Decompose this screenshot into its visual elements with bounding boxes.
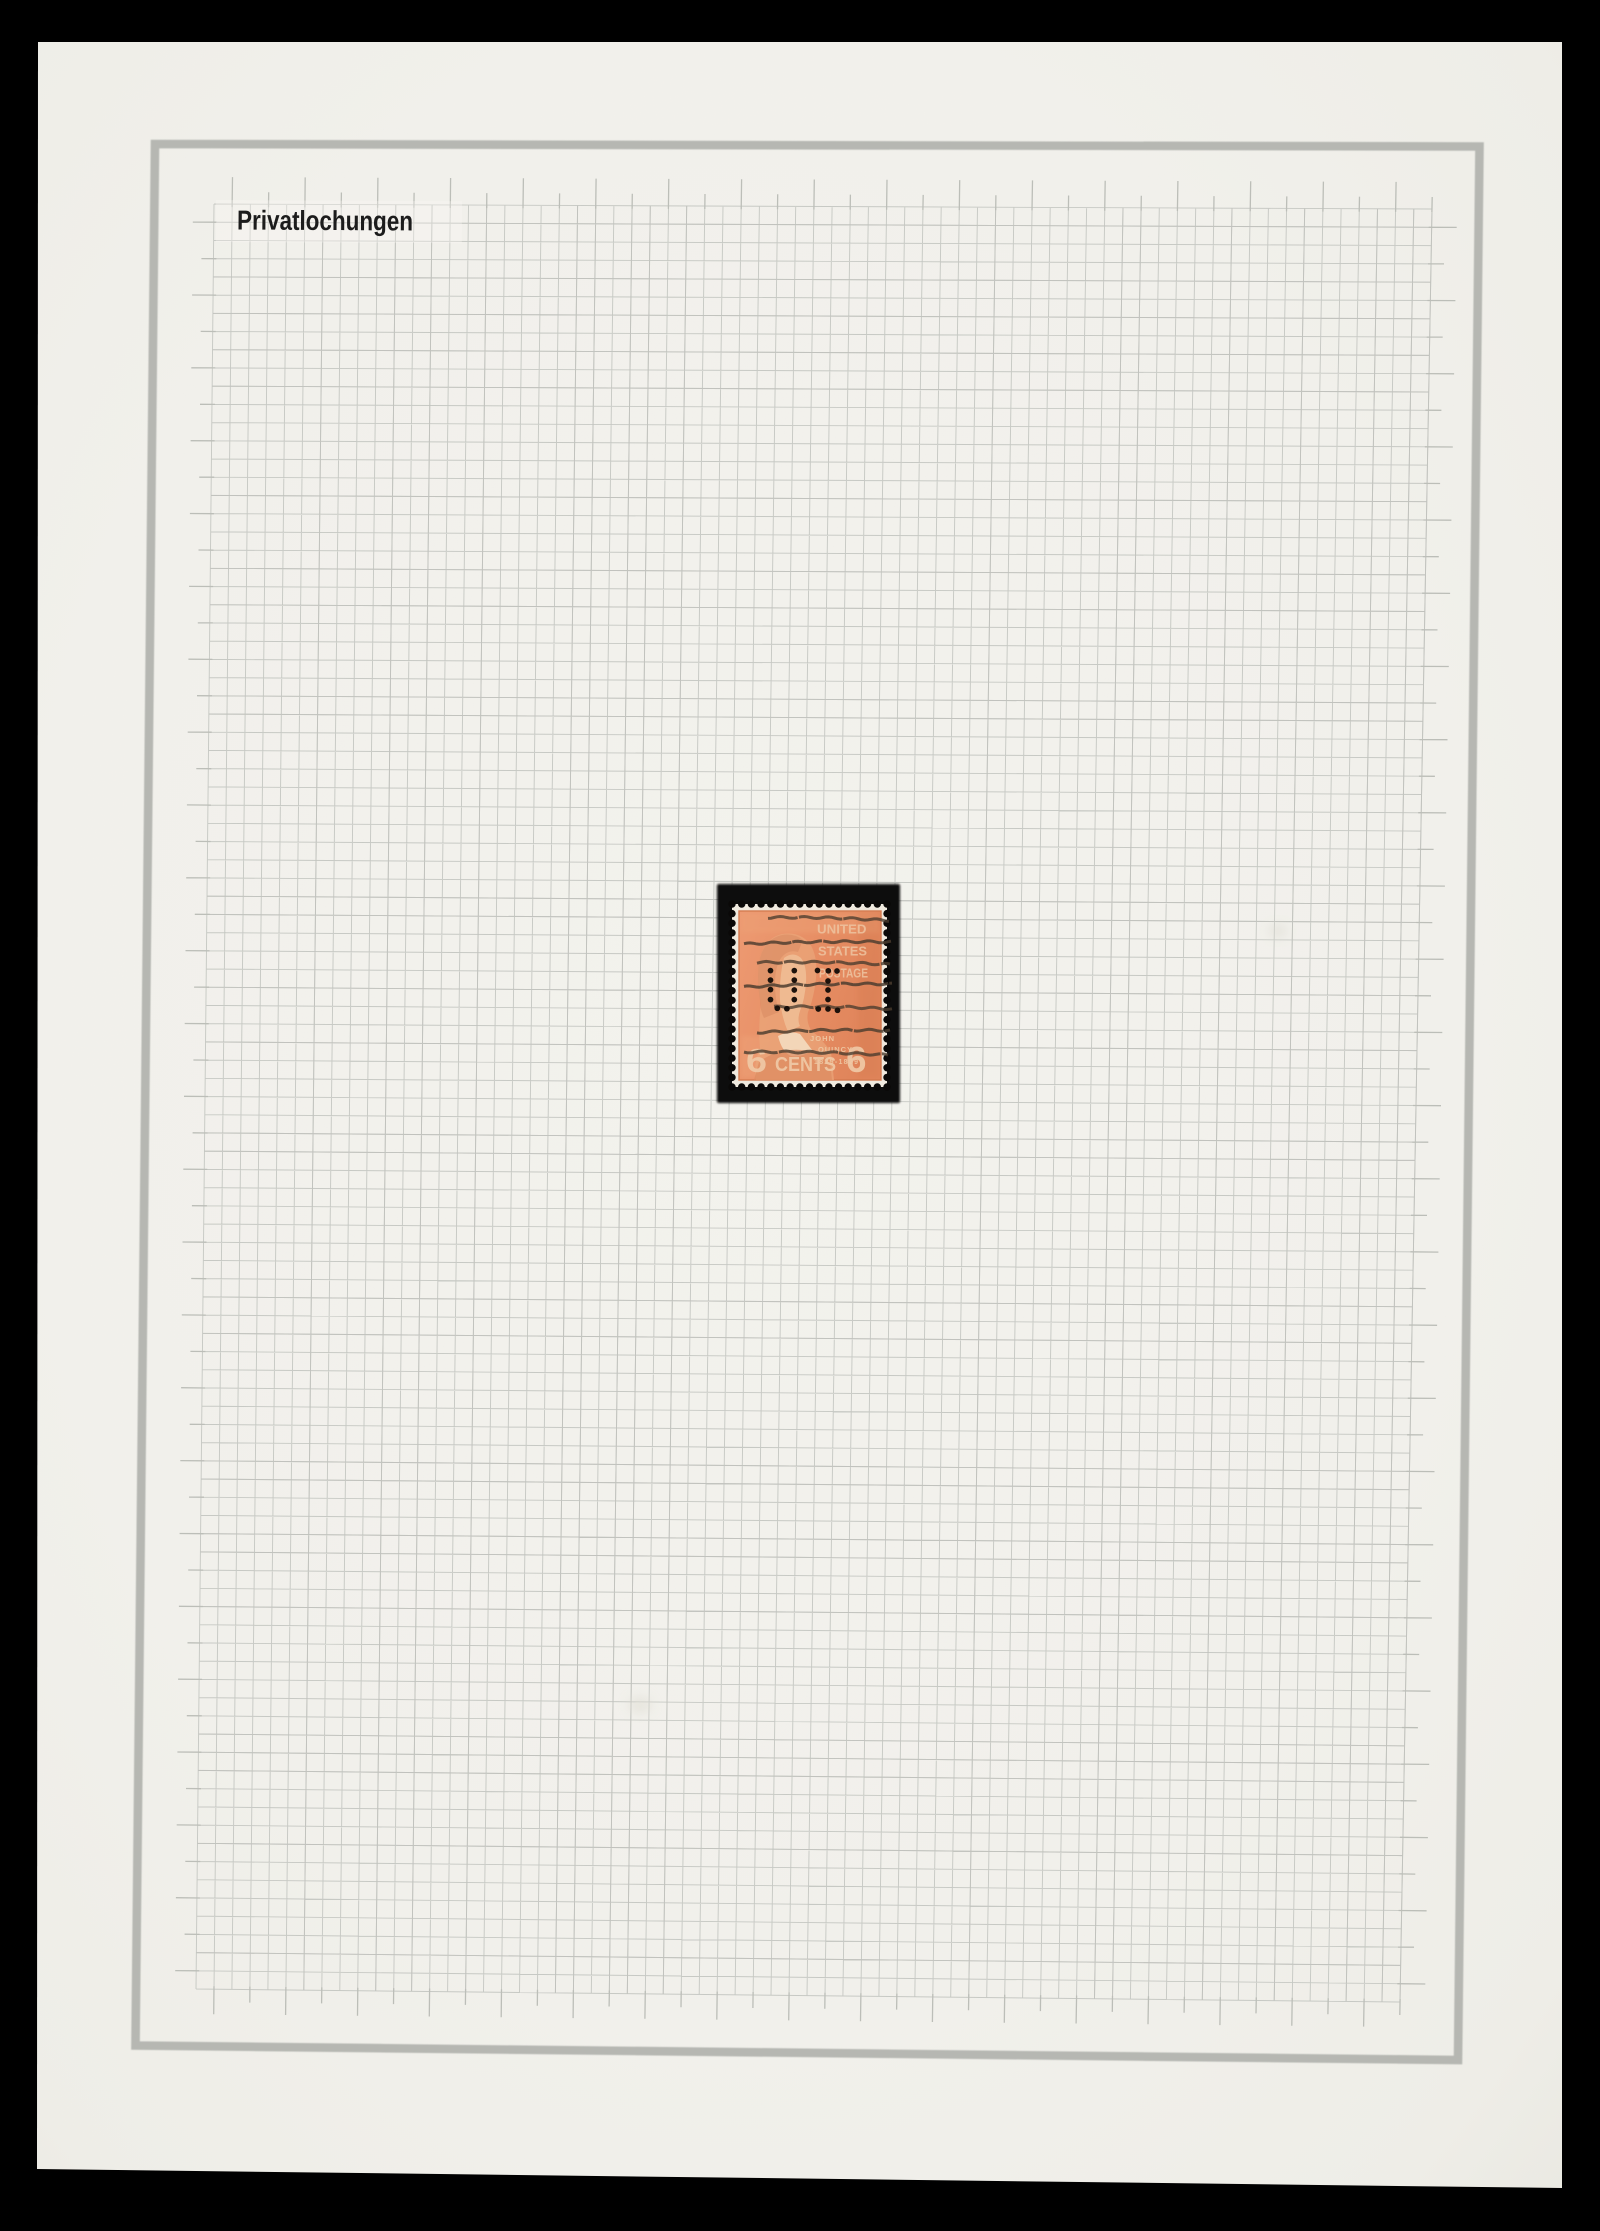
svg-text:STATES: STATES	[818, 944, 867, 959]
svg-text:6: 6	[746, 1042, 767, 1079]
svg-text:JOHN: JOHN	[810, 1034, 834, 1043]
svg-text:UNITED: UNITED	[817, 922, 867, 937]
svg-text:Privatlochungen: Privatlochungen	[237, 205, 413, 237]
svg-text:CENTS: CENTS	[775, 1053, 836, 1076]
svg-text:6: 6	[846, 1039, 867, 1080]
svg-text:POSTAGE: POSTAGE	[819, 966, 868, 981]
